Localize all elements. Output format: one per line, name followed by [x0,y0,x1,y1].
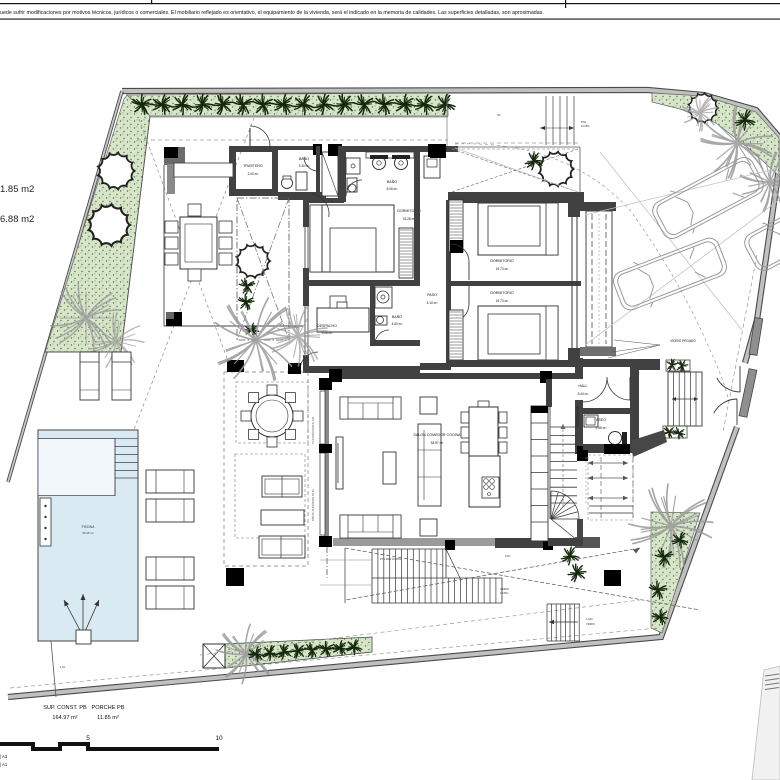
svg-text:53.97 m²: 53.97 m² [431,441,444,445]
svg-text:DORMITORIO: DORMITORIO [490,259,513,263]
svg-text:11.85 m²: 11.85 m² [97,715,119,721]
svg-text:SALON COMEDOR COCINA: SALON COMEDOR COCINA [414,433,462,437]
svg-text:SUP. CONST. PB: SUP. CONST. PB [43,705,87,711]
svg-text:1.85 m2: 1.85 m2 [0,184,34,195]
svg-text:2.00 m²: 2.00 m² [248,172,259,176]
svg-text:6.88 m2: 6.88 m2 [0,214,34,225]
svg-text:15.73 m²: 15.73 m² [496,267,509,271]
svg-text:TRASTERO: TRASTERO [243,164,263,168]
svg-text:PORCHE PB: PORCHE PB [92,705,125,711]
svg-text:PISCINA: PISCINA [82,525,96,529]
svg-text:5: 5 [86,735,90,742]
svg-text:15.28 m²: 15.28 m² [403,217,416,221]
svg-text:5.44 m²: 5.44 m² [578,392,589,396]
svg-text:4.10 m²: 4.10 m² [427,301,438,305]
svg-text:10.05%: 10.05% [581,125,590,128]
svg-text:10.05m: 10.05m [500,591,509,595]
svg-text:164.97 m²: 164.97 m² [52,715,77,721]
svg-text:| A1: | A1 [0,762,8,767]
svg-text:| A3: | A3 [0,754,8,759]
svg-text:PTE: PTE [581,121,586,124]
svg-text:DORMITORIO: DORMITORIO [490,291,513,295]
svg-text:VIDRIO: VIDRIO [500,587,509,591]
svg-text:1,94C: 1,94C [586,617,593,621]
svg-text:2.46 m²: 2.46 m² [596,426,607,430]
svg-text:BAÑO: BAÑO [387,179,397,184]
svg-text:10: 10 [215,735,223,742]
svg-text:PTE MAX 10.05%: PTE MAX 10.05% [380,557,402,561]
svg-text:PASO: PASO [427,293,437,297]
svg-text:VIDRIO PEGADO: VIDRIO PEGADO [670,339,696,343]
svg-text:15.73 m²: 15.73 m² [496,299,509,303]
svg-text:1,94: 1,94 [60,666,65,669]
svg-text:VIDRIO: VIDRIO [586,622,595,626]
svg-text:50.05 m²: 50.05 m² [82,531,93,535]
svg-text:uede sufrir modificaciones por: uede sufrir modificaciones por motivos t… [0,10,544,16]
svg-text:HALL: HALL [579,384,588,388]
svg-text:4,5C: 4,5C [505,554,511,558]
svg-text:4.60 m²: 4.60 m² [392,322,403,326]
svg-text:ASEO: ASEO [596,418,606,422]
svg-text:PLETINA PERFIL P.B.: PLETINA PERFIL P.B. [311,416,315,444]
svg-text:BAÑO: BAÑO [392,314,402,319]
svg-text:PARTE SUPERIOR 50 AL: PARTE SUPERIOR 50 AL [311,488,315,521]
svg-text:6.06 m²: 6.06 m² [387,187,398,191]
